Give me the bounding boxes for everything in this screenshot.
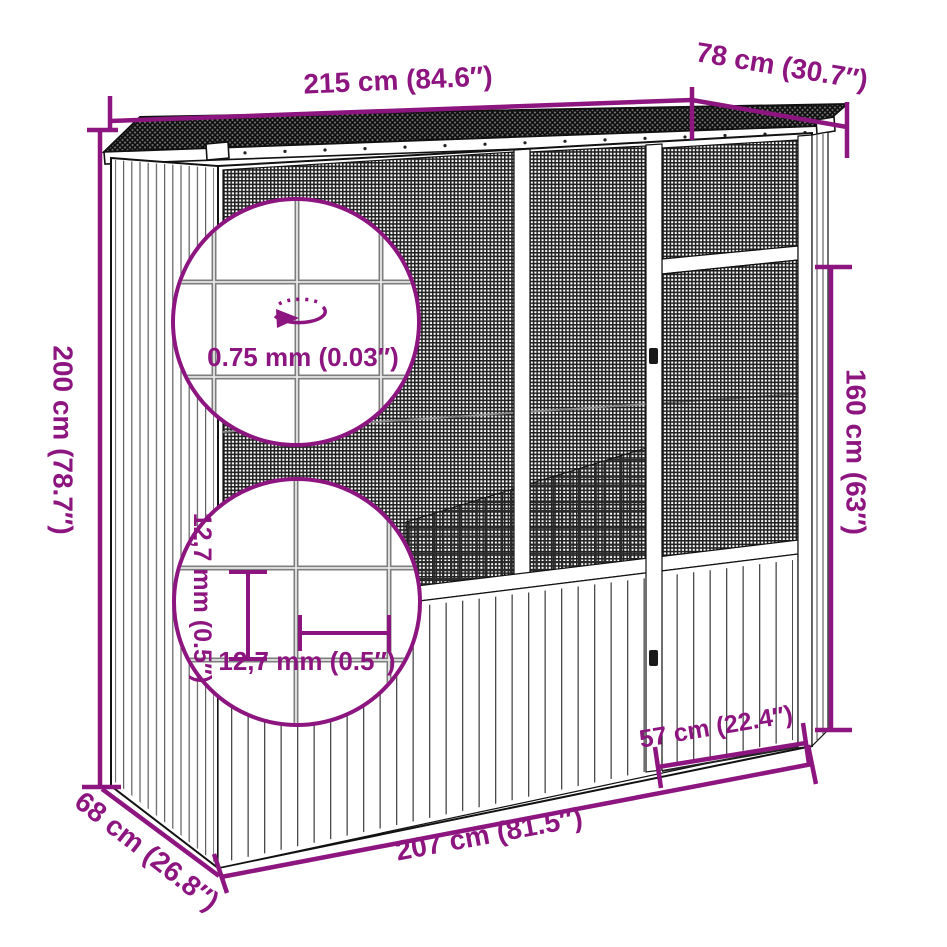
label-wire-thickness: 0.75 mm (0.03″) [207, 342, 399, 372]
door-left-post [646, 144, 662, 772]
roof-left-bracket [206, 142, 229, 160]
door-right-post [798, 135, 812, 748]
label-height-left: 200 cm (78.7″) [48, 345, 79, 534]
right-side-panel [812, 132, 828, 746]
door-latch-top [649, 348, 658, 364]
label-mesh-spacing-vertical: 12,7 mm (0.5″) [188, 513, 216, 683]
mesh-panel-above-door [662, 140, 798, 259]
frame-post-middle [514, 149, 530, 577]
label-door-height-right: 160 cm (63″) [841, 369, 872, 535]
door-latch-bottom [649, 650, 658, 666]
label-width-top: 215 cm (84.6″) [303, 60, 493, 99]
label-mesh-spacing-horizontal: 12,7 mm (0.5″) [218, 646, 395, 676]
aviary-dimension-diagram: 215 cm (84.6″) 78 cm (30.7″) 200 cm (78.… [0, 0, 947, 947]
door-mesh-panel [662, 260, 798, 556]
diagram-stage: 215 cm (84.6″) 78 cm (30.7″) 200 cm (78.… [0, 0, 947, 947]
label-depth-top: 78 cm (30.7″) [694, 36, 870, 95]
